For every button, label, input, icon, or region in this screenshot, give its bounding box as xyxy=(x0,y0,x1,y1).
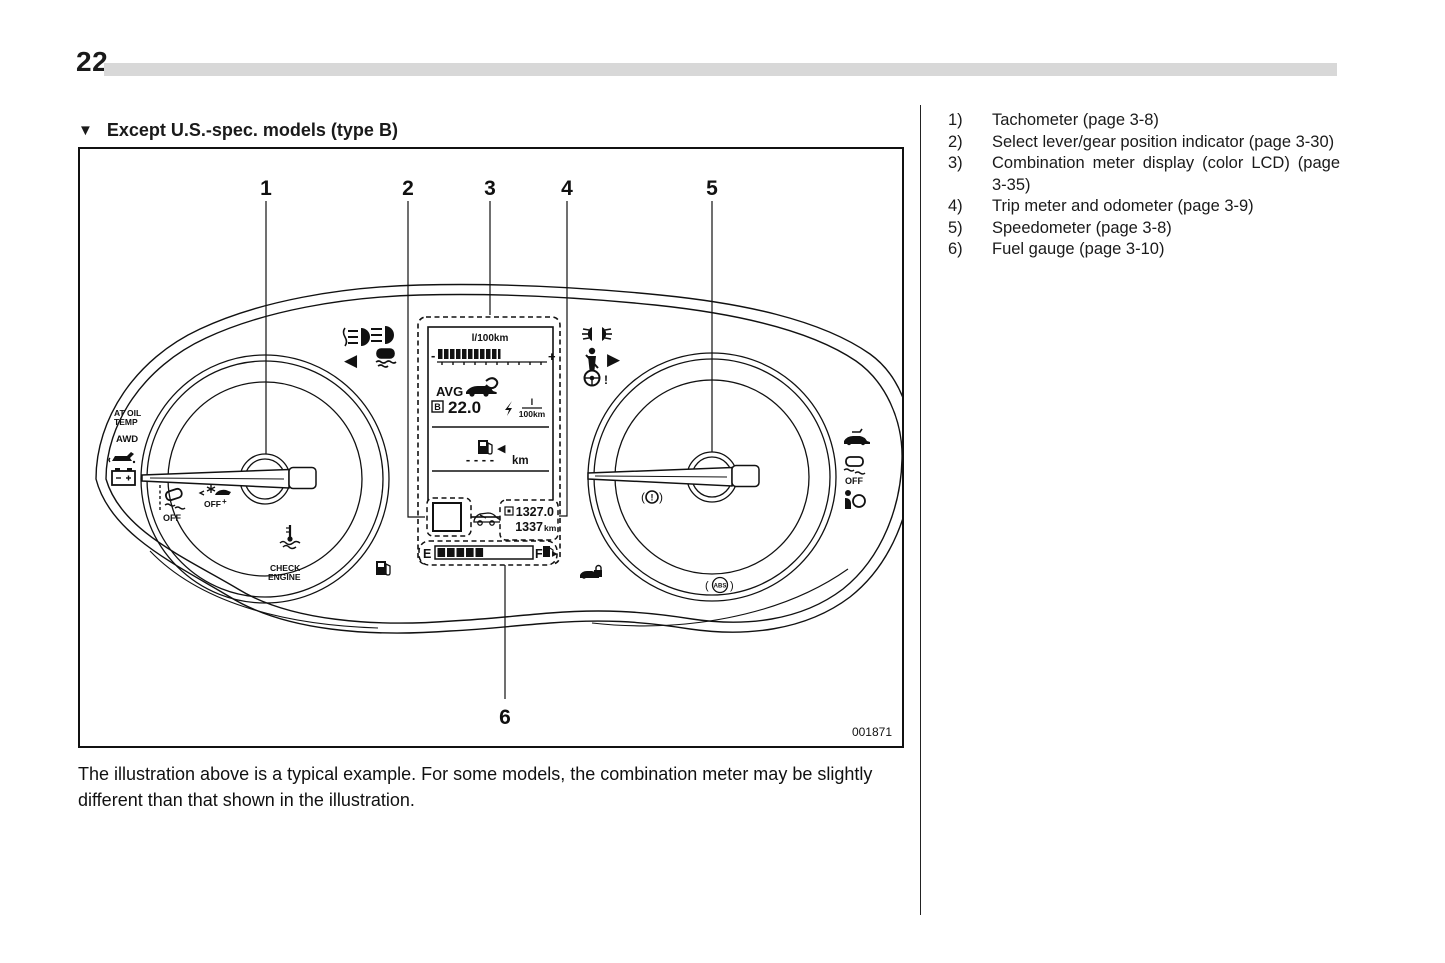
legend-number: 5) xyxy=(948,218,992,240)
instrument-cluster-drawing: 1 2 3 4 5 6 l/100km - xyxy=(80,149,902,746)
power-steering-warning-icon: ! xyxy=(585,371,609,388)
bar-plus-label: + xyxy=(548,349,556,364)
legend-text: Select lever/gear position indicator (pa… xyxy=(992,132,1340,154)
vdc-off-right-indicator: OFF xyxy=(844,457,865,486)
awd-label: AWD xyxy=(116,434,138,445)
coolant-temp-icon xyxy=(280,525,300,549)
figure-code: 001871 xyxy=(852,725,892,739)
brake-warning-mark: ! xyxy=(651,493,654,503)
range-arrow-icon: ◀ xyxy=(497,443,506,455)
gear-position-indicator xyxy=(427,498,471,536)
legend-number: 2) xyxy=(948,132,992,154)
avg-label: AVG xyxy=(436,384,463,399)
vdc-off-indicator: OFF xyxy=(160,485,185,523)
trip-odometer: 1327.0 1337 km xyxy=(500,500,558,540)
oil-pressure-icon xyxy=(109,452,135,463)
odometer-unit: km xyxy=(544,523,557,533)
range-dashes: - - - - xyxy=(466,452,494,467)
legend-number: 6) xyxy=(948,239,992,261)
lcd-display: l/100km - + xyxy=(418,317,560,565)
fuel-full-label: F xyxy=(535,547,543,561)
battery-charge-icon xyxy=(112,468,135,485)
section-heading-text: Except U.S.-spec. models (type B) xyxy=(107,120,398,141)
vdc-off-right-label: OFF xyxy=(845,476,863,486)
legend-text: Speedometer (page 3-8) xyxy=(992,218,1340,240)
brake-warning-icon: ( ! ) xyxy=(641,490,663,504)
legend-item-tachometer: 1) Tachometer (page 3-8) xyxy=(948,110,1340,132)
figure-caption: The illustration above is a typical exam… xyxy=(78,762,912,813)
position-light-icon xyxy=(582,327,612,341)
legend-text: Fuel gauge (page 3-10) xyxy=(992,239,1340,261)
legend-item-trip-meter: 4) Trip meter and odometer (page 3-9) xyxy=(948,196,1340,218)
legend-text: Tachometer (page 3-8) xyxy=(992,110,1340,132)
avg-unit-bottom: 100km xyxy=(519,409,546,419)
legend-item-select-lever: 2) Select lever/gear position indicator … xyxy=(948,132,1340,154)
instrument-cluster-figure: 1 2 3 4 5 6 l/100km - xyxy=(78,147,904,748)
callout-4: 4 xyxy=(561,177,573,200)
turn-right-icon: ▶ xyxy=(607,350,621,369)
turn-left-icon: ◀ xyxy=(344,351,358,370)
check-engine-label: CHECK ENGINE xyxy=(268,563,301,582)
legend-number: 1) xyxy=(948,110,992,132)
svg-text:): ) xyxy=(659,490,663,504)
abs-warning-icon: ( ABS ) xyxy=(705,578,734,593)
svg-text:ENGINE: ENGINE xyxy=(268,572,301,582)
low-fuel-icon xyxy=(376,561,390,575)
manual-page: 22 ▼ Except U.S.-spec. models (type B) xyxy=(0,0,1445,963)
star-off-label: OFF xyxy=(204,499,221,509)
avg-mode-label: B xyxy=(434,402,441,412)
odometer-value: 1337 xyxy=(515,520,543,534)
steering-warning-mark: ! xyxy=(604,373,608,387)
vdc-operation-icon xyxy=(376,349,396,367)
front-fog-light-icon xyxy=(344,328,371,346)
legend-text: Combination meter display (color LCD) (p… xyxy=(992,153,1340,196)
callout-1: 1 xyxy=(260,177,272,200)
fuel-arrow-icon: ▶ xyxy=(552,549,559,558)
header-rule xyxy=(104,63,1337,76)
high-beam-icon xyxy=(371,326,394,344)
svg-text:(: ( xyxy=(641,490,645,504)
security-indicator-icon xyxy=(580,566,602,579)
callout-2: 2 xyxy=(402,177,414,200)
abs-label: ABS xyxy=(714,584,727,590)
consumption-unit-label: l/100km xyxy=(472,333,509,344)
legend-item-fuel-gauge: 6) Fuel gauge (page 3-10) xyxy=(948,239,1340,261)
legend-number: 4) xyxy=(948,196,992,218)
car-maintenance-icon xyxy=(844,429,870,445)
svg-text:TEMP: TEMP xyxy=(114,417,138,427)
airbag-warning-icon xyxy=(845,490,865,509)
callout-5: 5 xyxy=(706,177,718,200)
seatbelt-warning-icon xyxy=(586,348,598,370)
callout-3: 3 xyxy=(484,177,496,200)
svg-text:): ) xyxy=(730,580,734,592)
legend-list: 1) Tachometer (page 3-8) 2) Select lever… xyxy=(948,110,1340,261)
section-heading: ▼ Except U.S.-spec. models (type B) xyxy=(78,120,398,141)
legend-item-speedometer: 5) Speedometer (page 3-8) xyxy=(948,218,1340,240)
star-car-off-indicator: OFF + xyxy=(200,485,231,509)
section-marker-icon: ▼ xyxy=(78,122,93,139)
bar-minus-label: - xyxy=(431,348,435,363)
legend-item-combination-meter: 3) Combination meter display (color LCD)… xyxy=(948,153,1340,196)
fuel-bar-segments xyxy=(438,548,484,557)
legend-text: Trip meter and odometer (page 3-9) xyxy=(992,196,1340,218)
range-unit: km xyxy=(512,455,529,467)
trip-value: 1327.0 xyxy=(516,505,554,519)
callout-6: 6 xyxy=(499,706,511,729)
fuel-empty-label: E xyxy=(423,547,431,561)
fuel-gauge: E F ▶ xyxy=(419,541,559,565)
svg-text:(: ( xyxy=(705,580,709,592)
column-divider xyxy=(920,105,921,915)
avg-unit-top: l xyxy=(531,397,534,408)
avg-value: 22.0 xyxy=(448,398,481,417)
speedometer-needle xyxy=(588,466,759,487)
legend-number: 3) xyxy=(948,153,992,196)
at-oil-temp-label: AT OIL TEMP xyxy=(114,408,141,427)
star-off-plus: + xyxy=(222,497,227,506)
vdc-off-label: OFF xyxy=(163,513,181,523)
